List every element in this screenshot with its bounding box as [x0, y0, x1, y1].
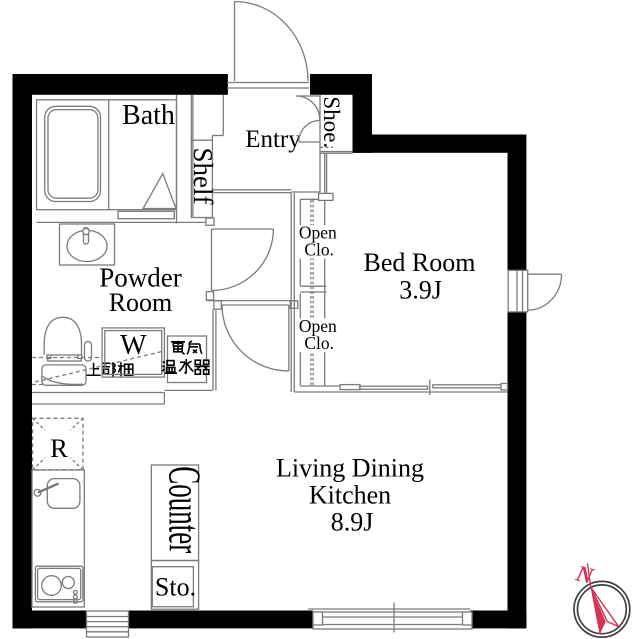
svg-text:Entry: Entry [245, 126, 301, 153]
svg-text:W: W [120, 330, 147, 361]
svg-text:Shoe.: Shoe. [319, 96, 344, 148]
svg-text:Clo.: Clo. [304, 240, 334, 260]
svg-text:3.9J: 3.9J [399, 276, 442, 305]
svg-text:Clo.: Clo. [304, 333, 334, 353]
svg-text:Living Dining: Living Dining [276, 454, 424, 483]
svg-text:Shelf: Shelf [188, 148, 218, 205]
svg-text:8.9J: 8.9J [331, 508, 374, 537]
svg-text:Bed Room: Bed Room [364, 248, 476, 277]
svg-text:Kitchen: Kitchen [309, 481, 391, 510]
svg-text:Counter: Counter [159, 466, 209, 553]
svg-text:N: N [573, 560, 597, 589]
svg-text:R: R [50, 433, 68, 463]
svg-text:Sto.: Sto. [155, 573, 196, 602]
svg-text:Bath: Bath [122, 100, 175, 131]
svg-text:Room: Room [109, 288, 173, 317]
